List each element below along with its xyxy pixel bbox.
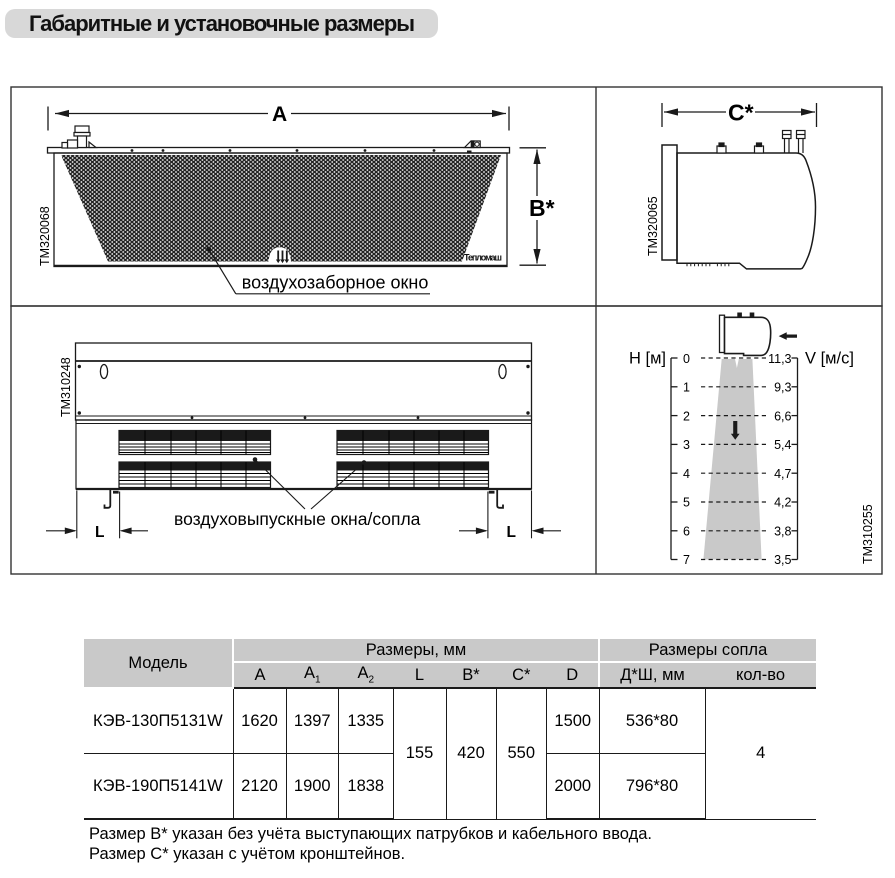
svg-text:воздухозаборное окно: воздухозаборное окно (242, 273, 429, 293)
svg-text:TM320065: TM320065 (646, 196, 660, 256)
svg-text:3,5: 3,5 (774, 553, 791, 567)
svg-text:H [м]: H [м] (629, 350, 666, 368)
svg-text:V [м/с]: V [м/с] (805, 350, 854, 368)
svg-text:TM310255: TM310255 (861, 504, 875, 564)
svg-text:11,3: 11,3 (768, 352, 791, 366)
svg-text:9,3: 9,3 (774, 381, 791, 395)
svg-text:6: 6 (683, 525, 690, 539)
svg-text:4: 4 (683, 467, 690, 481)
svg-text:4,2: 4,2 (774, 496, 791, 510)
svg-text:4,7: 4,7 (774, 467, 791, 481)
svg-text:воздуховыпускные окна/сопла: воздуховыпускные окна/сопла (174, 509, 421, 529)
svg-text:1: 1 (683, 381, 690, 395)
svg-text:L: L (95, 524, 104, 541)
svg-text:0: 0 (683, 352, 690, 366)
svg-text:Тепломаш: Тепломаш (464, 253, 502, 263)
svg-text:A: A (272, 103, 287, 126)
svg-text:3,8: 3,8 (774, 525, 791, 539)
svg-text:TM320068: TM320068 (38, 206, 52, 266)
svg-text:5,4: 5,4 (774, 438, 791, 452)
svg-text:7: 7 (683, 553, 690, 567)
svg-text:C*: C* (728, 100, 754, 126)
svg-text:6,6: 6,6 (774, 409, 791, 423)
svg-text:3: 3 (683, 438, 690, 452)
svg-text:B*: B* (529, 195, 555, 221)
svg-text:2: 2 (683, 409, 690, 423)
svg-text:5: 5 (683, 496, 690, 510)
svg-text:L: L (507, 524, 516, 541)
svg-text:TM310248: TM310248 (59, 357, 73, 417)
